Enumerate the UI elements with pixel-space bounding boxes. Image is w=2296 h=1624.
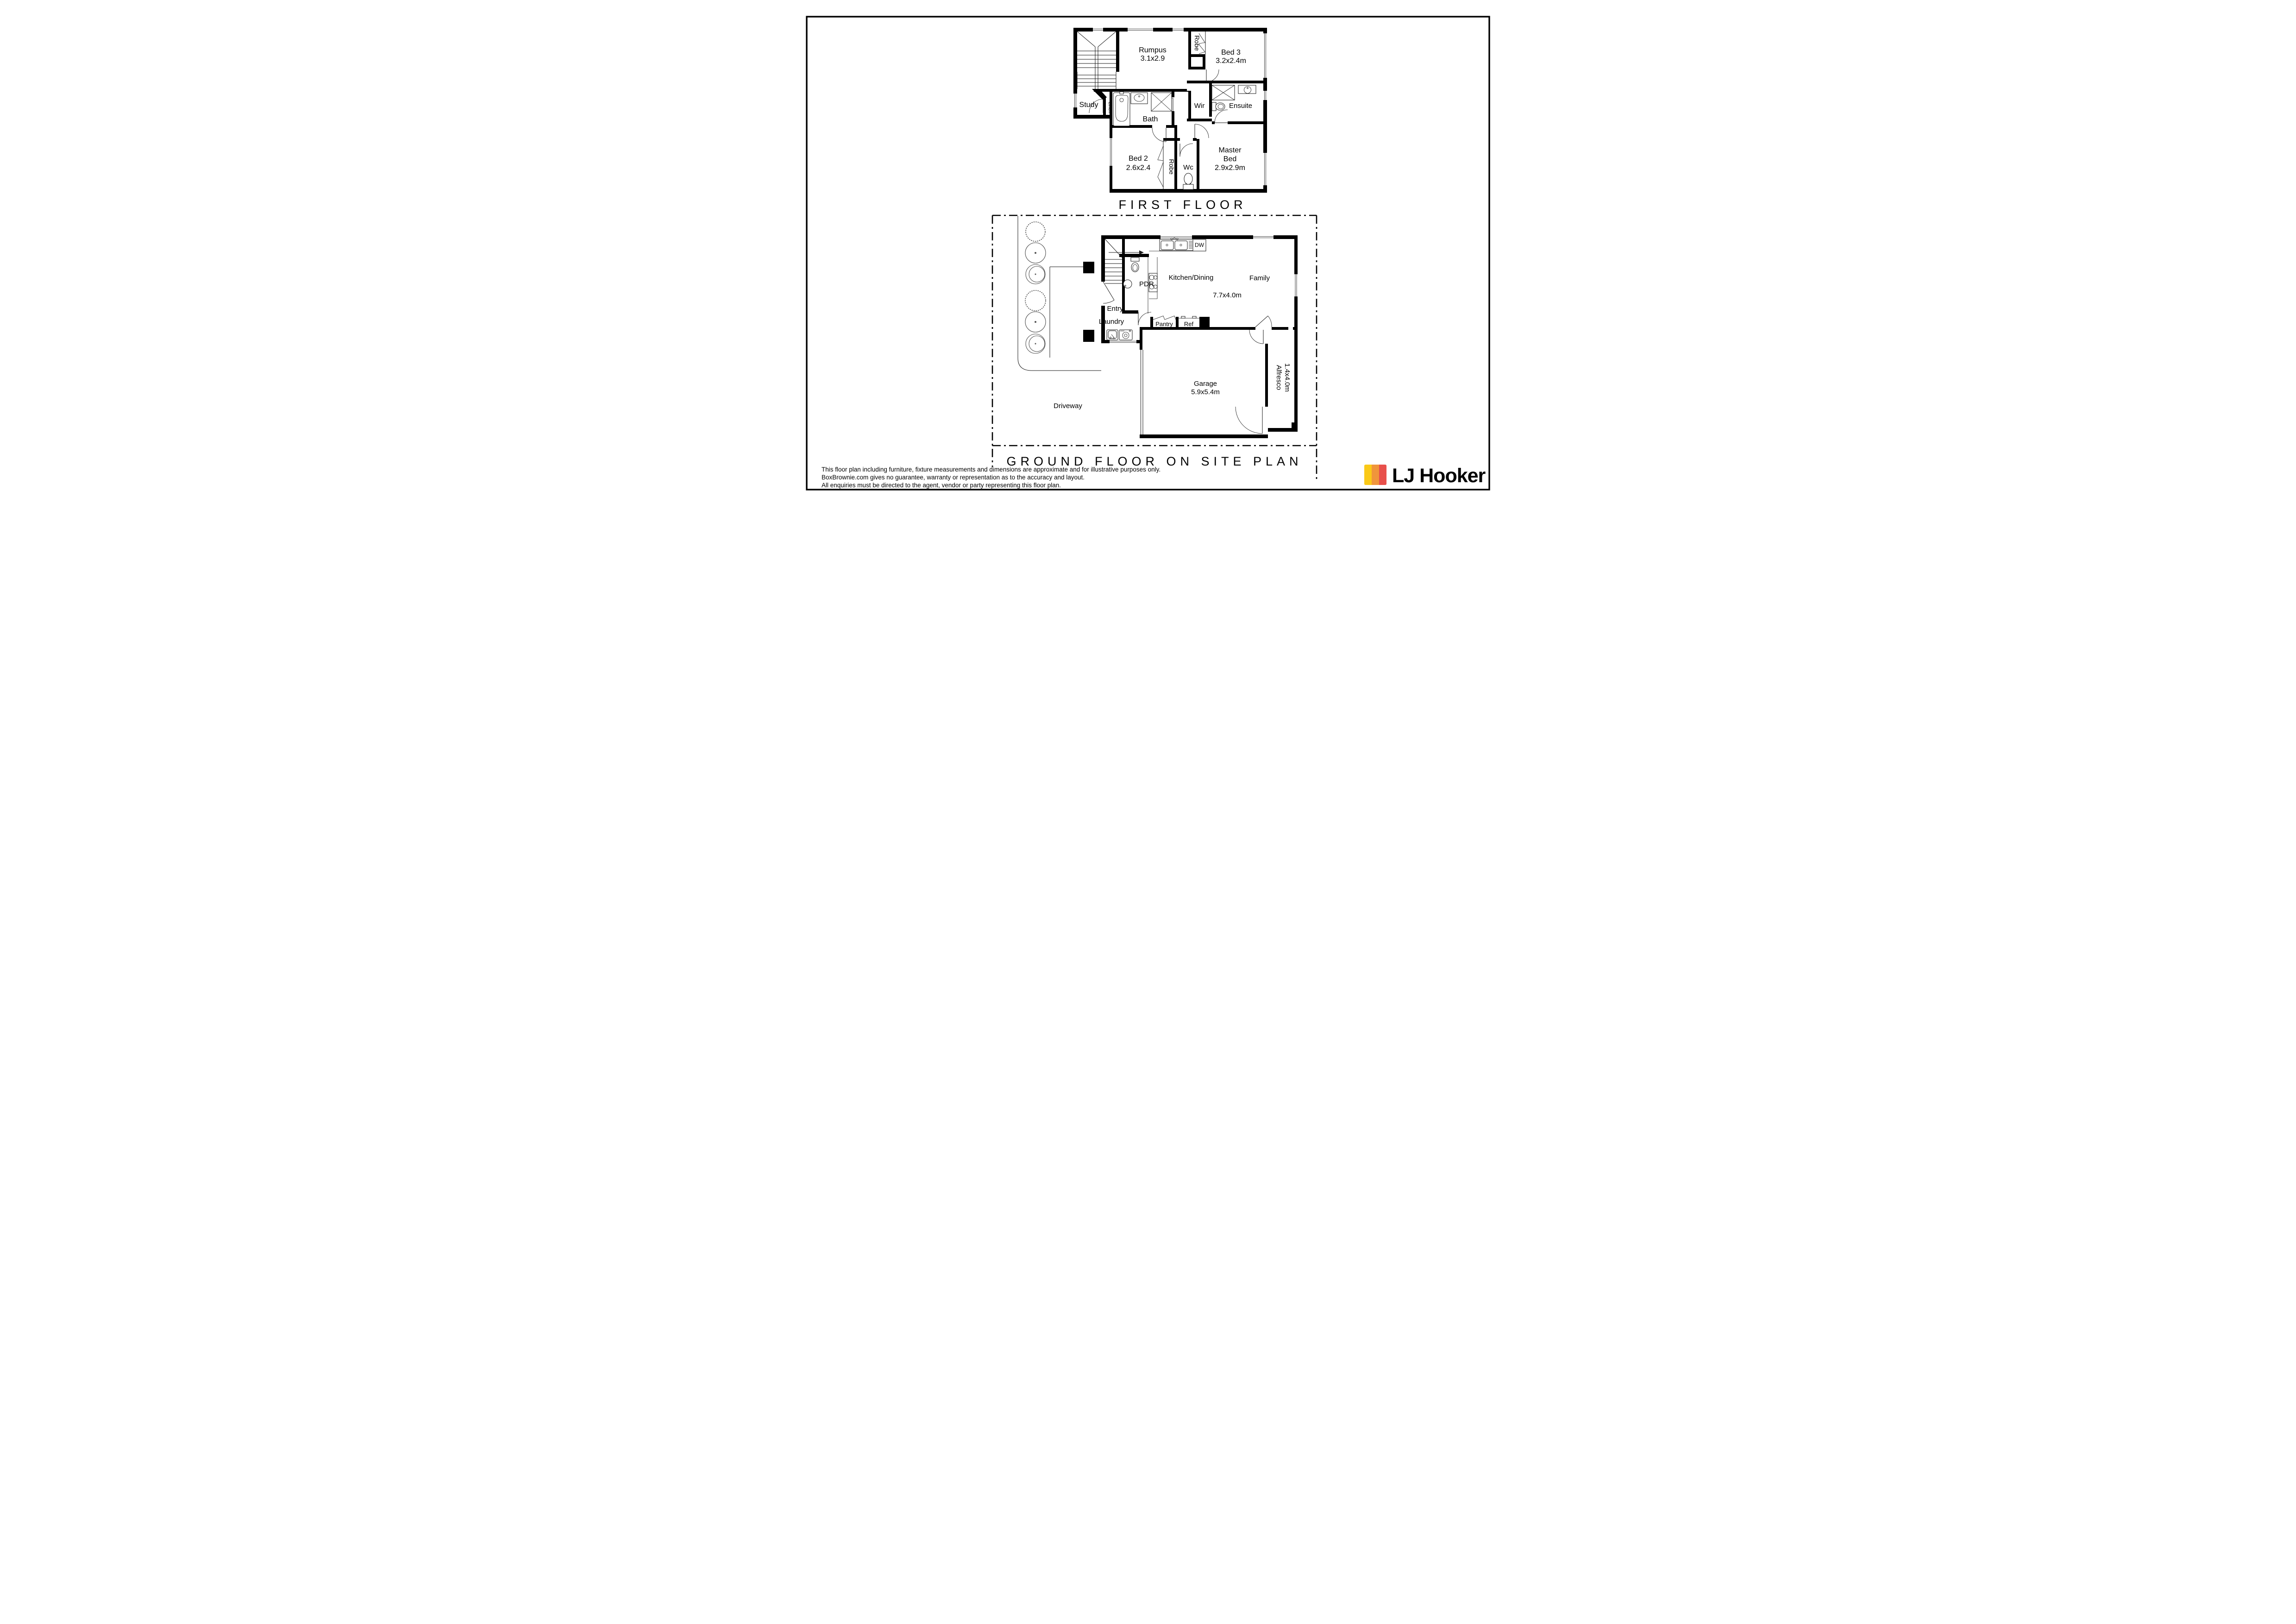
bath-label: Bath — [1143, 115, 1158, 123]
disclaimer-line-3: All enquiries must be directed to the ag… — [822, 482, 1061, 489]
wir-label: Wir — [1194, 102, 1205, 110]
bed3-dims: 3.2x2.4m — [1216, 57, 1246, 65]
bed3-robe-label: Robe — [1193, 35, 1201, 51]
porch-pillar — [1083, 262, 1094, 273]
rumpus-label: Rumpus — [1139, 46, 1167, 54]
first-floor-title: FIRST FLOOR — [1118, 198, 1247, 212]
master-bed-label-2: Bed — [1223, 155, 1236, 163]
master-bed-label-1: Master — [1219, 146, 1242, 154]
dw-label: DW — [1195, 242, 1204, 248]
kitchen-dining-label: Kitchen/Dining — [1169, 274, 1214, 282]
pdr-toilet — [1131, 258, 1139, 272]
brand-name: LJ Hooker — [1392, 465, 1486, 487]
porch-pillar — [1083, 330, 1094, 342]
alfresco-label: Alfresco — [1275, 365, 1283, 390]
kitchen-sink — [1160, 238, 1193, 251]
driveway-label: Driveway — [1054, 402, 1082, 410]
garage-dims: 5.9x5.4m — [1191, 388, 1220, 396]
rumpus-dims: 3.1x2.9 — [1141, 55, 1165, 63]
ensuite-toilet — [1212, 102, 1225, 111]
logo-stripes-icon — [1364, 465, 1386, 485]
bed3-label: Bed 3 — [1221, 49, 1241, 57]
bed2-label: Bed 2 — [1129, 155, 1148, 163]
garage-label: Garage — [1194, 380, 1217, 388]
bed2-robe-label: Robe — [1168, 159, 1175, 175]
entry-label: Entry — [1107, 305, 1123, 313]
bath-basin — [1131, 93, 1148, 104]
wc-toilet — [1183, 173, 1193, 189]
master-bed-dims: 2.9x2.9m — [1215, 164, 1245, 172]
dishwasher: DW — [1193, 239, 1206, 251]
floor-plan-page: Rumpus 3.1x2.9 Robe Bed 3 3.2x2.4m Study… — [790, 0, 1506, 506]
study-label: Study — [1079, 101, 1098, 109]
lj-hooker-logo: LJ Hooker — [1364, 465, 1486, 487]
wc-label: Wc — [1183, 164, 1193, 171]
washing-machine — [1119, 330, 1132, 340]
ensuite-label: Ensuite — [1229, 102, 1252, 110]
linen-label: Linen — [1107, 102, 1112, 113]
ensuite-basin — [1238, 85, 1256, 94]
family-label: Family — [1249, 274, 1270, 282]
page-border — [807, 17, 1489, 490]
bath-shower — [1151, 93, 1172, 111]
pantry-label: Pantry — [1155, 321, 1173, 327]
living-dims-label: 7.7x4.0m — [1213, 291, 1242, 299]
bed2-dims: 2.6x2.4 — [1126, 164, 1151, 172]
ensuite-shower — [1212, 85, 1235, 100]
laundry-label: Laundry — [1099, 318, 1124, 326]
alfresco-dims: 1.4x4.0m — [1283, 363, 1291, 392]
ref-label: Ref — [1184, 321, 1194, 327]
pdr-label: PDR — [1139, 280, 1154, 288]
pdr-basin — [1123, 280, 1132, 288]
disclaimer-line-1: This floor plan including furniture, fix… — [822, 466, 1161, 473]
bathtub — [1113, 92, 1130, 126]
laundry-tub — [1107, 330, 1118, 340]
disclaimer-line-2: BoxBrownie.com gives no guarantee, warra… — [822, 474, 1085, 481]
